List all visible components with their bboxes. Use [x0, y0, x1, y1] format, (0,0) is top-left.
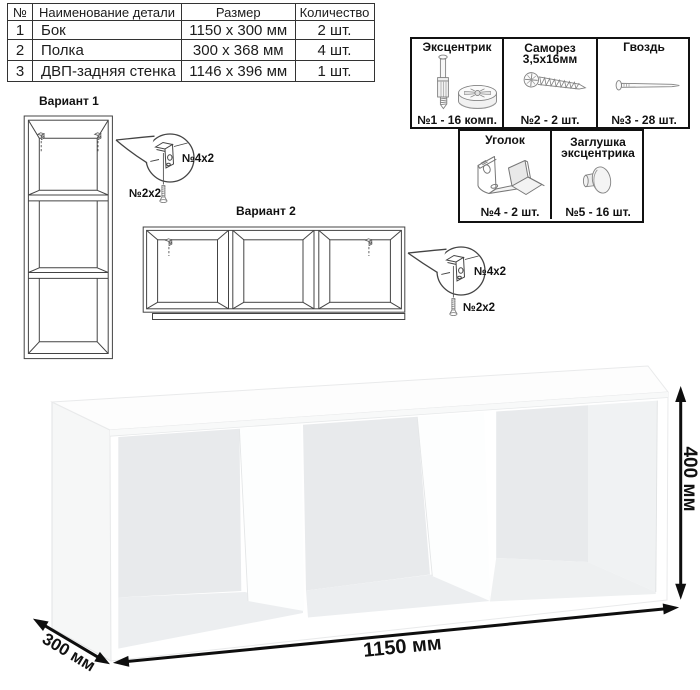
svg-text:400 мм: 400 мм [679, 446, 700, 511]
